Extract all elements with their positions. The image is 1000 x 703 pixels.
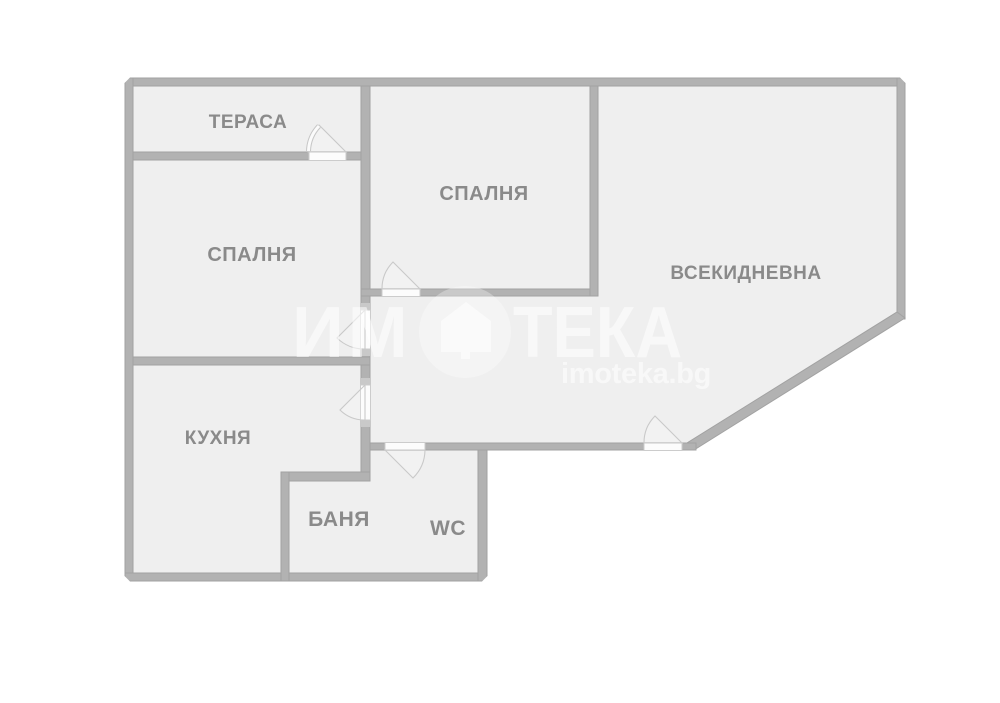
svg-text:КУХНЯ: КУХНЯ (185, 428, 251, 449)
svg-text:ИМ: ИМ (292, 293, 412, 373)
svg-text:БАНЯ: БАНЯ (308, 508, 370, 531)
svg-text:imoteka.bg: imoteka.bg (561, 358, 711, 390)
svg-text:СПАЛНЯ: СПАЛНЯ (439, 183, 528, 205)
svg-text:ВСЕКИДНЕВНА: ВСЕКИДНЕВНА (670, 263, 821, 284)
svg-text:ТЕРАСА: ТЕРАСА (209, 112, 288, 133)
svg-text:WC: WC (430, 517, 466, 540)
svg-text:СПАЛНЯ: СПАЛНЯ (207, 244, 296, 266)
